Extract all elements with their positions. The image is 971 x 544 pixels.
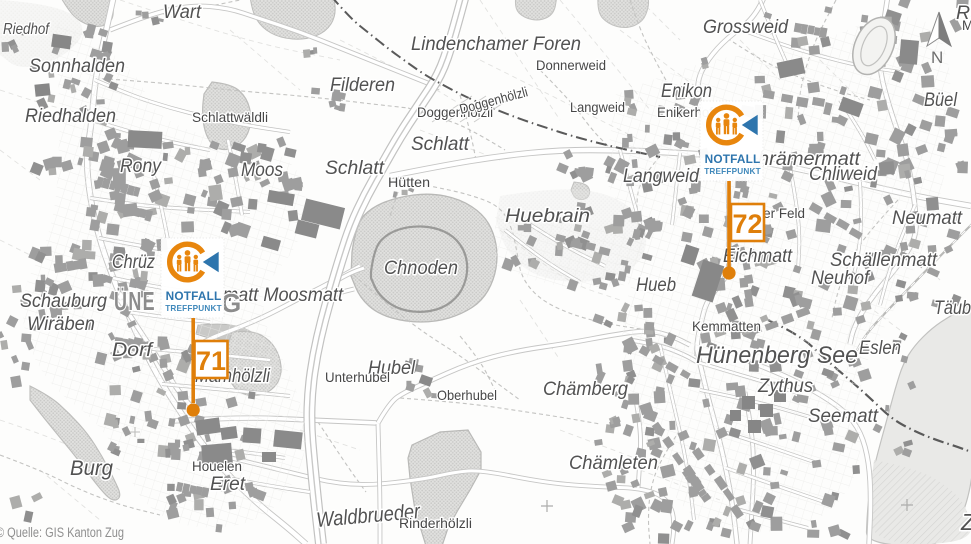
svg-text:Chliweid: Chliweid xyxy=(809,163,878,185)
svg-text:Donnerweid: Donnerweid xyxy=(536,58,606,73)
svg-text:Schlattwäldli: Schlattwäldli xyxy=(192,110,268,125)
svg-text:Riedhalden: Riedhalden xyxy=(25,105,116,127)
svg-text:TREFFPUNKT: TREFFPUNKT xyxy=(704,167,761,176)
svg-text:Chrüz: Chrüz xyxy=(112,251,155,273)
svg-text:Grossweid: Grossweid xyxy=(703,16,789,38)
svg-text:Zythus: Zythus xyxy=(757,375,813,397)
svg-text:Unterhubel: Unterhubel xyxy=(325,370,390,385)
svg-text:Chämberg: Chämberg xyxy=(543,378,628,400)
svg-text:Sonnhalden: Sonnhalden xyxy=(29,55,125,77)
svg-text:Eret: Eret xyxy=(210,473,247,495)
svg-text:NOTFALL: NOTFALL xyxy=(166,289,222,303)
svg-text:Eslen: Eslen xyxy=(859,337,901,359)
svg-text:Seematt: Seematt xyxy=(808,405,880,427)
svg-text:Schlatt: Schlatt xyxy=(325,157,386,179)
svg-text:Moos: Moos xyxy=(241,159,283,181)
svg-text:ÜNE: ÜNE xyxy=(114,286,156,316)
svg-text:TREFFPUNKT: TREFFPUNKT xyxy=(165,304,222,313)
svg-text:© Quelle: GIS Kanton Zug: © Quelle: GIS Kanton Zug xyxy=(0,525,124,540)
svg-text:Wiräben: Wiräben xyxy=(27,313,95,335)
svg-text:Büel: Büel xyxy=(924,89,958,111)
svg-text:Rony: Rony xyxy=(120,155,162,177)
svg-text:Zü: Zü xyxy=(960,509,971,535)
svg-text:Kemmatten: Kemmatten xyxy=(692,319,761,334)
svg-text:Neumatt: Neumatt xyxy=(892,207,963,229)
svg-text:Wart: Wart xyxy=(163,1,202,23)
svg-text:Neuhof: Neuhof xyxy=(811,267,871,289)
svg-text:NOTFALL: NOTFALL xyxy=(705,152,761,166)
svg-text:71: 71 xyxy=(196,346,226,376)
svg-text:Hütten: Hütten xyxy=(388,175,430,190)
svg-text:Oberhubel: Oberhubel xyxy=(437,388,497,403)
svg-text:Lindenchamer Foren: Lindenchamer Foren xyxy=(411,33,581,55)
svg-text:Enikon: Enikon xyxy=(661,80,712,102)
svg-text:Täub: Täub xyxy=(934,297,971,319)
svg-text:Rinderhölzli: Rinderhölzli xyxy=(399,516,472,531)
svg-text:Dorf: Dorf xyxy=(112,339,155,361)
svg-text:Hünenberg See: Hünenberg See xyxy=(696,342,858,369)
svg-text:Huebrain: Huebrain xyxy=(505,205,590,227)
svg-text:Burg: Burg xyxy=(70,456,113,480)
svg-text:Schlatt: Schlatt xyxy=(411,133,471,155)
svg-text:Langweid: Langweid xyxy=(623,165,700,187)
svg-text:Hueb: Hueb xyxy=(636,274,676,296)
svg-text:72: 72 xyxy=(732,209,762,239)
svg-text:Mü: Mü xyxy=(962,18,971,33)
svg-text:Eichmatt: Eichmatt xyxy=(723,245,793,267)
svg-text:Chämleten: Chämleten xyxy=(569,452,658,474)
svg-text:Langweid: Langweid xyxy=(570,100,625,115)
svg-text:Riedhof: Riedhof xyxy=(3,21,50,38)
svg-text:Filderen: Filderen xyxy=(330,74,395,96)
svg-text:Chnoden: Chnoden xyxy=(384,257,458,279)
svg-text:Houelen: Houelen xyxy=(192,459,242,474)
svg-text:Schauburg: Schauburg xyxy=(20,290,107,312)
svg-text:N: N xyxy=(931,48,943,67)
